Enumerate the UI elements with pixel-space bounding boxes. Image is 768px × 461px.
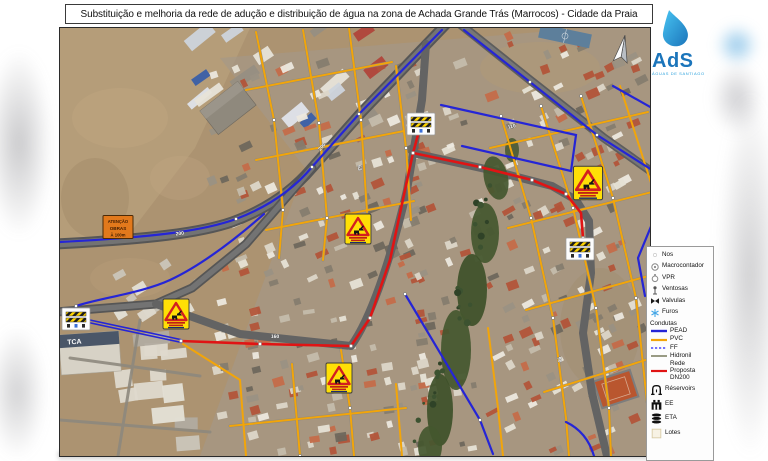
legend-item-lotes: Lotes <box>650 427 711 440</box>
macrocontador-icon <box>650 262 660 272</box>
ads-logo: AdS ÁGUAS DE SANTIAGO <box>652 8 716 76</box>
water-drop-icon <box>658 8 692 48</box>
legend-item-rede-proposta: Rede Proposta DN200 <box>650 361 711 381</box>
legend-label: ETA <box>665 415 677 422</box>
barrier-sign <box>62 308 90 330</box>
legend-item-pvc: PVC <box>650 336 711 343</box>
legend-item-eta: ETA <box>650 412 711 425</box>
legend-item-valvulas: Valvulas <box>650 296 711 306</box>
attention-obras-sign: ATENÇÃO OBRAS À 100m <box>103 216 133 239</box>
pipe-diameter-label: 63 <box>356 165 363 171</box>
logo-acronym: AdS <box>652 52 716 70</box>
barrier-sign <box>566 238 594 260</box>
map-canvas[interactable]: TCA <box>59 27 651 457</box>
legend-label: Furos <box>662 309 678 316</box>
vpr-icon <box>650 273 660 283</box>
ventosa-icon <box>650 285 660 295</box>
legend-item-ee: EE <box>650 398 711 411</box>
legend-item-macrocontador: Macrocontador <box>650 262 711 272</box>
roadworks-warning-sign <box>345 214 371 244</box>
ff-line-swatch <box>650 345 668 351</box>
proposed-line-swatch <box>650 368 668 374</box>
legend-label: Nos <box>662 252 673 259</box>
furo-icon <box>650 308 660 318</box>
legend-label: FF <box>670 345 678 352</box>
map-drawing: TCA <box>60 28 650 456</box>
legend-label: Hidronil <box>670 353 691 360</box>
edge-blur <box>0 48 52 238</box>
legend-label: Réservoirs <box>665 386 695 393</box>
building-label: TCA <box>67 339 82 347</box>
barrier-sign <box>407 113 435 135</box>
edge-blur <box>716 24 758 66</box>
legend-item-ff: FF <box>650 345 711 352</box>
legend-label: Valvulas <box>662 298 685 305</box>
eta-icon <box>650 412 663 425</box>
valve-icon <box>650 296 660 306</box>
sign-line1: ATENÇÃO <box>108 219 129 224</box>
screenshot: Substituição e melhoria da rede de aduçã… <box>0 0 768 461</box>
legend-label: Macrocontador <box>662 263 704 270</box>
pipe-diameter-label: 160 <box>271 334 280 340</box>
legend-panel: Nos Macrocontador VPR Ventosas Valvulas … <box>646 246 714 461</box>
legend-label: PEAD <box>670 328 687 335</box>
logo-subtitle: ÁGUAS DE SANTIAGO <box>652 71 716 76</box>
legend-label: PVC <box>670 336 683 343</box>
ee-icon <box>650 398 663 411</box>
pead-line-swatch <box>650 328 668 334</box>
hidronil-line-swatch <box>650 353 668 359</box>
node-icon <box>650 250 660 260</box>
legend-item-pead: PEAD <box>650 328 711 335</box>
edge-blur <box>712 62 762 134</box>
lot-icon <box>650 427 663 440</box>
tca-warehouse: TCA <box>60 331 121 375</box>
edge-blur <box>718 95 768 455</box>
sign-line3: À 100m <box>111 233 126 238</box>
reservoir-icon <box>650 383 663 396</box>
legend-label: Rede Proposta DN200 <box>670 361 711 381</box>
sign-line2: OBRAS <box>110 226 127 231</box>
pipe-diameter-label: 200 <box>175 230 184 237</box>
legend-label: VPR <box>662 275 675 282</box>
legend-section-title: Condutas <box>650 320 711 327</box>
roadworks-warning-sign <box>163 299 189 329</box>
legend-item-hidronil: Hidronil <box>650 353 711 360</box>
roadworks-warning-sign <box>573 166 602 200</box>
legend-item-reservoirs: Réservoirs <box>650 383 711 396</box>
legend-item-nos: Nos <box>650 250 711 260</box>
edge-blur <box>0 325 46 460</box>
legend-item-vpr: VPR <box>650 273 711 283</box>
map-title: Substituição e melhoria da rede de aduçã… <box>65 4 653 24</box>
roadworks-warning-sign <box>326 363 352 393</box>
legend-item-ventosas: Ventosas <box>650 285 711 295</box>
legend-label: EE <box>665 401 673 408</box>
legend-label: Lotes <box>665 430 680 437</box>
pvc-line-swatch <box>650 337 668 343</box>
legend-item-furos: Furos <box>650 308 711 318</box>
legend-label: Ventosas <box>662 286 688 293</box>
